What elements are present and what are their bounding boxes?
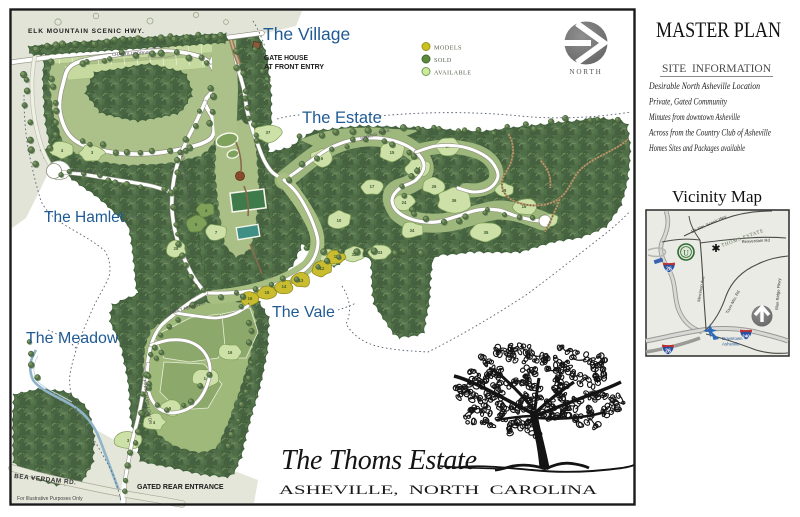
svg-text:37: 37 <box>266 130 271 135</box>
svg-text:AVAILABLE: AVAILABLE <box>434 70 471 77</box>
svg-text:For Illustrative Purposes Only: For Illustrative Purposes Only <box>17 496 83 502</box>
svg-text:16: 16 <box>248 296 253 301</box>
svg-text:SOLD: SOLD <box>434 57 452 64</box>
svg-text:MASTER PLAN: MASTER PLAN <box>656 17 781 42</box>
svg-text:26: 26 <box>665 349 671 355</box>
svg-text:Homes Sites and Packages avail: Homes Sites and Packages available <box>648 143 745 153</box>
svg-text:10: 10 <box>337 218 342 223</box>
svg-text:SITE INFORMATION: SITE INFORMATION <box>662 61 771 75</box>
svg-text:Downtown: Downtown <box>722 336 743 341</box>
svg-text:35: 35 <box>484 230 489 235</box>
svg-text:17: 17 <box>370 184 375 189</box>
svg-text:14: 14 <box>282 284 287 289</box>
svg-text:GATE HOUSE: GATE HOUSE <box>264 55 308 62</box>
svg-text:15: 15 <box>390 150 395 155</box>
svg-text:240: 240 <box>742 334 750 339</box>
svg-text:Across from the Country Club o: Across from the Country Club of Ashevill… <box>648 128 771 138</box>
svg-text:The Hamlet: The Hamlet <box>44 209 125 226</box>
svg-text:16: 16 <box>228 350 233 355</box>
svg-text:26: 26 <box>666 267 672 273</box>
svg-text:U: U <box>683 249 689 258</box>
svg-text:The Thoms Estate: The Thoms Estate <box>281 445 477 476</box>
svg-text:Private, Gated Community: Private, Gated Community <box>648 97 727 107</box>
svg-text:Vicinity Map: Vicinity Map <box>672 187 762 206</box>
svg-text:NORTH: NORTH <box>569 68 602 76</box>
svg-text:The Estate: The Estate <box>302 109 382 127</box>
svg-text:ELK MOUNTAIN SCENIC HWY.: ELK MOUNTAIN SCENIC HWY. <box>28 28 145 35</box>
svg-text:15: 15 <box>265 290 270 295</box>
svg-text:26: 26 <box>432 184 437 189</box>
svg-text:AT FRONT ENTRY: AT FRONT ENTRY <box>264 64 324 71</box>
svg-text:ASHEVILLE, NORTH CAROLINA: ASHEVILLE, NORTH CAROLINA <box>279 482 598 497</box>
svg-text:MODELS: MODELS <box>434 45 462 52</box>
svg-text:Desirable North Asheville Loca: Desirable North Asheville Location <box>648 81 760 91</box>
svg-text:33: 33 <box>378 250 383 255</box>
svg-text:✱: ✱ <box>711 243 720 255</box>
svg-text:The Vale: The Vale <box>272 304 335 321</box>
svg-text:GATED REAR ENTRANCE: GATED REAR ENTRANCE <box>137 484 224 491</box>
svg-text:The Village: The Village <box>263 24 350 44</box>
svg-text:36: 36 <box>452 198 457 203</box>
svg-text:24: 24 <box>402 200 407 205</box>
svg-text:Minutes from downtown Ashevill: Minutes from downtown Asheville <box>648 112 740 122</box>
svg-text:34: 34 <box>410 228 415 233</box>
svg-text:Asheville: Asheville <box>722 342 740 347</box>
